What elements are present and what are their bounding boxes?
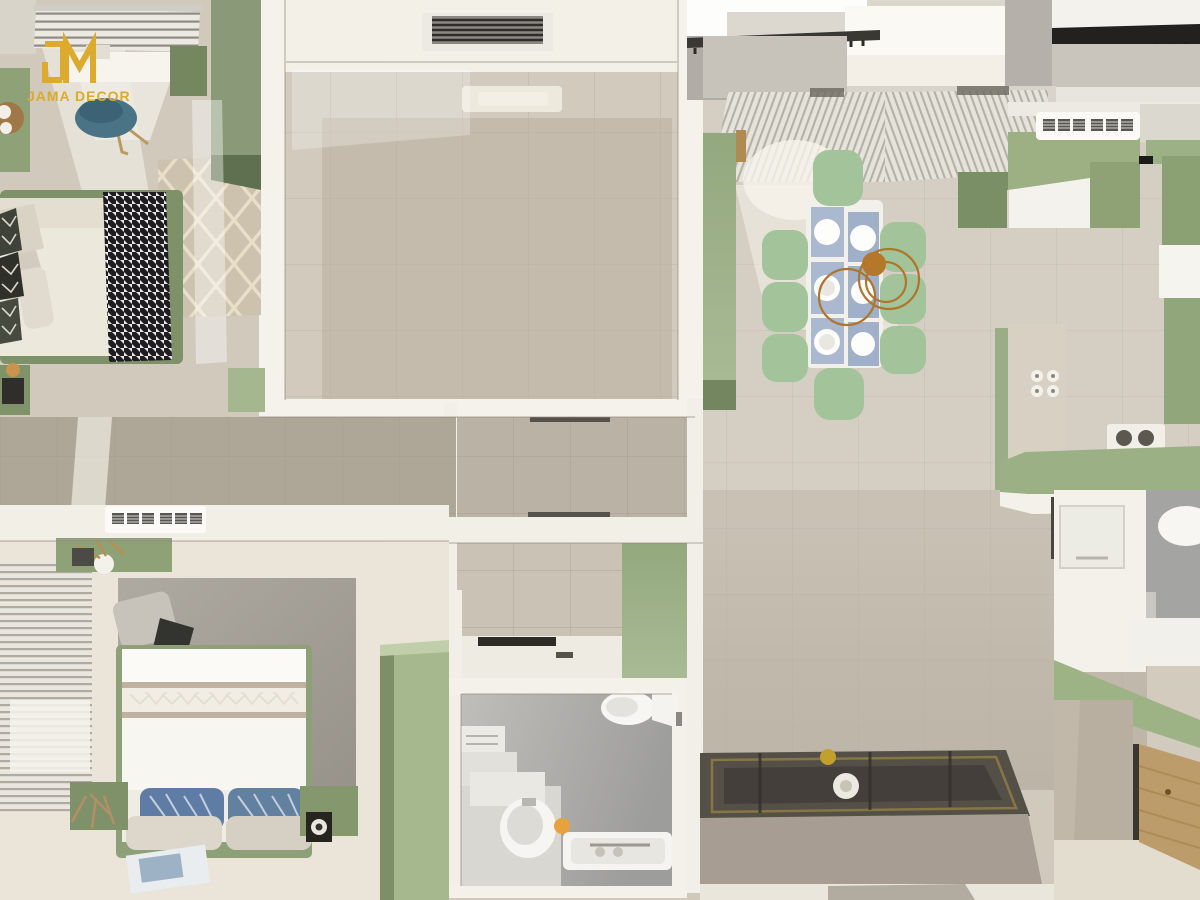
svg-text:JAMA DECOR: JAMA DECOR [27,88,131,104]
